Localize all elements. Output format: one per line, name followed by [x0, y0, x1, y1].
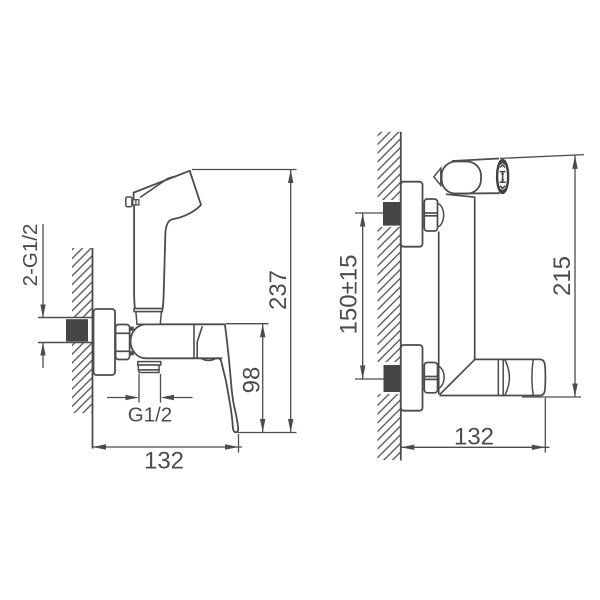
- svg-text:G1/2: G1/2: [128, 404, 172, 427]
- svg-text:132: 132: [454, 424, 494, 451]
- svg-text:215: 215: [549, 256, 576, 296]
- svg-text:98: 98: [239, 367, 266, 394]
- svg-text:150±15: 150±15: [336, 255, 363, 335]
- svg-text:132: 132: [144, 448, 184, 475]
- svg-text:2-G1/2: 2-G1/2: [19, 224, 42, 287]
- svg-text:237: 237: [265, 270, 292, 310]
